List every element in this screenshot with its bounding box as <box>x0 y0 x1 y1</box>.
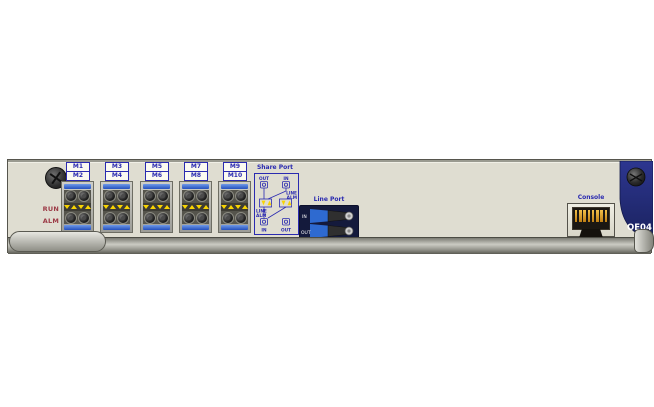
fiber-port-group-m3-m4 <box>100 181 133 233</box>
ejector-handle <box>9 231 106 252</box>
fiber-adapter-icon <box>196 190 208 202</box>
rj45-pin-icon <box>600 210 603 222</box>
rj45-pin-icon <box>596 210 599 222</box>
laser-warning-icon <box>221 205 227 209</box>
fiber-adapter-icon <box>222 190 234 202</box>
fiber-port-group-m7-m8 <box>179 181 212 233</box>
laser-warning-icon <box>117 205 123 209</box>
fiber-adapter-icon <box>78 212 90 224</box>
port-label-bottom: M10 <box>224 172 246 180</box>
run-led-label: RUN <box>41 205 59 213</box>
port-label-top: M9 <box>224 163 246 172</box>
share-port-diagram: OUT IN LINE ALM LINE ALM IN OUT <box>254 173 299 235</box>
dust-cap-icon <box>221 184 248 189</box>
rail-end-cap <box>634 229 654 253</box>
dust-cap-icon <box>182 225 209 230</box>
port-label-bottom: M6 <box>146 172 168 180</box>
fiber-port-group-m5-m6 <box>140 181 173 233</box>
share-alm-label: ALM <box>256 213 266 219</box>
dust-cap-icon <box>64 184 91 189</box>
share-out-label: OUT <box>259 176 269 182</box>
fiber-adapter-icon <box>104 190 116 202</box>
rj45-cavity <box>572 207 610 230</box>
share-in-label: IN <box>261 228 267 234</box>
dust-cap-icon <box>143 184 170 189</box>
port-label-bottom: M4 <box>106 172 128 180</box>
share-alm-label: ALM <box>287 195 297 201</box>
share-out-label: OUT <box>281 228 291 234</box>
laser-warning-icon <box>164 205 170 209</box>
fiber-port-group-m9-m10 <box>218 181 251 233</box>
rj45-pin-icon <box>583 210 586 222</box>
fiber-adapter-icon <box>235 190 247 202</box>
fiber-port-group-m1-m2 <box>61 181 94 233</box>
connector-symbol-icon <box>283 182 290 189</box>
dust-cap-icon <box>64 225 91 230</box>
share-in-label: IN <box>283 176 289 182</box>
fiber-adapter-block <box>64 190 91 224</box>
laser-warning-icon <box>189 205 195 209</box>
line-port-title: Line Port <box>304 196 354 203</box>
laser-warning-icon <box>71 205 77 209</box>
laser-warning-strip <box>182 203 209 211</box>
port-label-top: M3 <box>106 163 128 172</box>
port-label-top: M1 <box>67 163 89 172</box>
laser-warning-icon <box>235 205 241 209</box>
console-label: Console <box>569 194 613 201</box>
fiber-adapter-icon <box>157 190 169 202</box>
dust-cap-icon <box>221 225 248 230</box>
laser-warning-strip <box>103 203 130 211</box>
lc-connector-icon <box>328 226 347 237</box>
fiber-adapter-icon <box>144 190 156 202</box>
laser-warning-icon <box>150 205 156 209</box>
port-label-top: M7 <box>185 163 207 172</box>
rj45-pin-icon <box>588 210 591 222</box>
rj45-pin-icon <box>605 210 608 222</box>
rj45-pin-icon <box>579 210 582 222</box>
fiber-adapter-icon <box>157 212 169 224</box>
fiber-adapter-icon <box>222 212 234 224</box>
connector-symbol-icon <box>261 219 268 226</box>
port-label-bottom: M8 <box>185 172 207 180</box>
captive-screw-icon <box>627 168 645 186</box>
laser-warning-icon <box>228 205 234 209</box>
share-port-title: Share Port <box>251 164 299 171</box>
share-port-schematic-svg: OUT IN LINE ALM LINE ALM IN OUT <box>255 174 298 234</box>
fiber-adapter-icon <box>196 212 208 224</box>
connector-symbol-icon <box>261 182 268 189</box>
port-label-m3-m4: M3 M4 <box>105 162 129 181</box>
alm-led-label: ALM <box>41 217 59 225</box>
fiber-adapter-icon <box>144 212 156 224</box>
port-label-bottom: M2 <box>67 172 89 180</box>
fiber-adapter-icon <box>78 190 90 202</box>
port-label-m9-m10: M9 M10 <box>223 162 247 181</box>
laser-warning-icon <box>143 205 149 209</box>
dust-cap-icon <box>143 225 170 230</box>
fiber-adapter-block <box>143 190 170 224</box>
laser-warning-icon <box>78 205 84 209</box>
port-label-top: M5 <box>146 163 168 172</box>
laser-warning-strip <box>143 203 170 211</box>
laser-warning-icon <box>157 205 163 209</box>
port-label-m5-m6: M5 M6 <box>145 162 169 181</box>
laser-warning-icon <box>262 201 292 206</box>
fiber-adapter-icon <box>104 212 116 224</box>
laser-warning-icon <box>242 205 248 209</box>
laser-warning-icon <box>110 205 116 209</box>
fiber-adapter-block <box>221 190 248 224</box>
fiber-adapter-icon <box>117 212 129 224</box>
fiber-adapter-icon <box>65 190 77 202</box>
lc-connector-icon <box>328 211 347 222</box>
laser-warning-icon <box>85 205 91 209</box>
line-port-connector-svg: IN OUT <box>300 206 358 241</box>
line-port-in-label: IN <box>302 214 307 220</box>
port-label-m1-m2: M1 M2 <box>66 162 90 181</box>
laser-warning-icon <box>103 205 109 209</box>
fiber-adapter-icon <box>117 190 129 202</box>
end-panel-svg: OE04 <box>617 161 653 237</box>
laser-warning-icon <box>64 205 70 209</box>
laser-warning-strip <box>64 203 91 211</box>
laser-warning-icon <box>203 205 209 209</box>
fiber-adapter-block <box>103 190 130 224</box>
laser-warning-icon <box>124 205 130 209</box>
end-panel: OE04 <box>617 161 653 237</box>
rj45-pin-icon <box>592 210 595 222</box>
dust-cap-icon <box>103 225 130 230</box>
line-port-out-label: OUT <box>301 230 311 236</box>
rj45-pin-icon <box>575 210 578 222</box>
connector-symbol-icon <box>283 219 290 226</box>
laser-warning-icon <box>182 205 188 209</box>
fiber-adapter-icon <box>65 212 77 224</box>
laser-warning-strip <box>221 203 248 211</box>
fiber-adapter-icon <box>235 212 247 224</box>
port-label-m7-m8: M7 M8 <box>184 162 208 181</box>
dust-cap-icon <box>182 184 209 189</box>
line-card-faceplate: RUN ALM M1 M2 M3 M4 M5 M6 M7 M8 M9 M10 <box>7 159 652 253</box>
fiber-adapter-block <box>182 190 209 224</box>
laser-warning-icon <box>196 205 202 209</box>
dust-cap-icon <box>103 184 130 189</box>
fiber-adapter-icon <box>183 212 195 224</box>
fiber-adapter-icon <box>183 190 195 202</box>
